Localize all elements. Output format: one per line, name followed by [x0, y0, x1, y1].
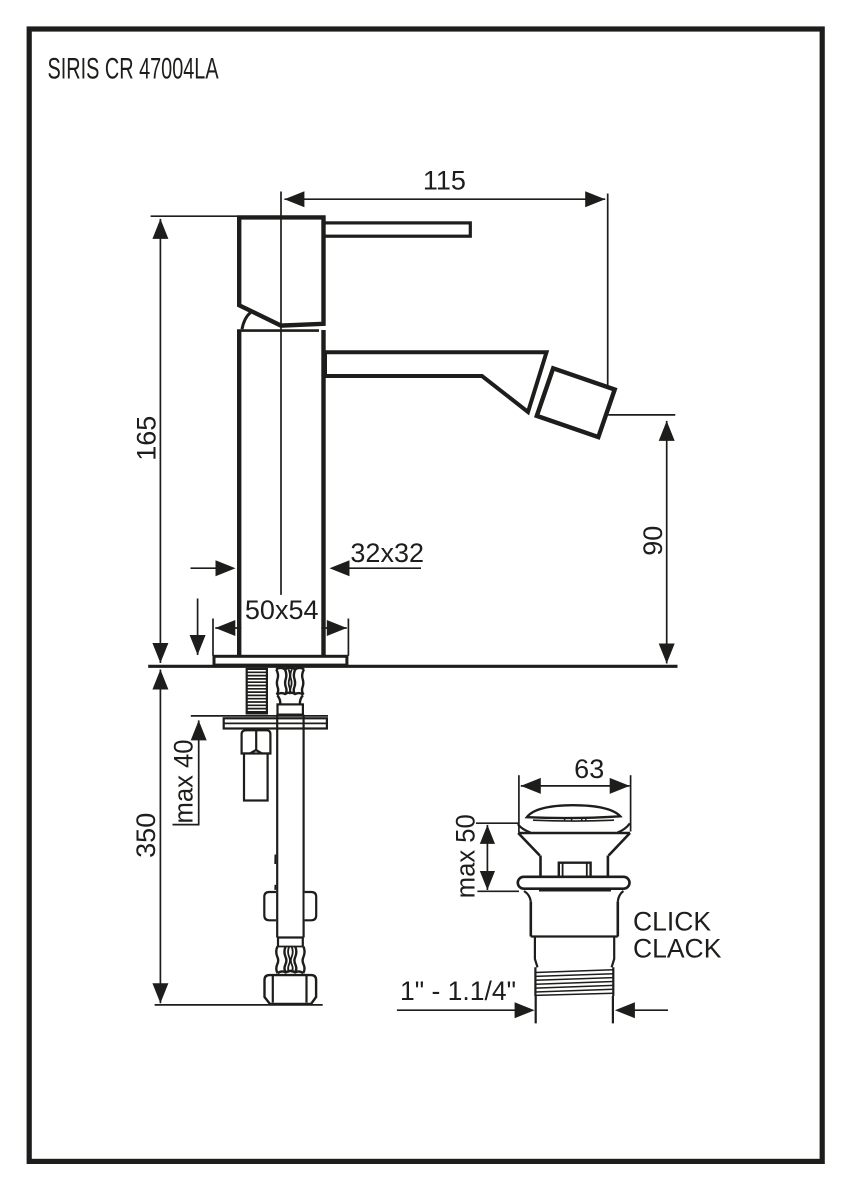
svg-text:165: 165 — [131, 416, 161, 461]
svg-text:CLICK: CLICK — [633, 907, 711, 937]
svg-text:1" - 1.1/4": 1" - 1.1/4" — [400, 976, 516, 1006]
svg-text:50x54: 50x54 — [245, 595, 319, 625]
svg-text:350: 350 — [131, 813, 161, 858]
svg-text:SIRIS CR 47004LA: SIRIS CR 47004LA — [48, 52, 219, 85]
svg-text:115: 115 — [423, 166, 466, 196]
svg-text:CLACK: CLACK — [633, 934, 722, 964]
svg-text:max 50: max 50 — [450, 814, 480, 898]
svg-text:90: 90 — [638, 526, 668, 556]
svg-text:32x32: 32x32 — [350, 538, 424, 568]
svg-text:max 40: max 40 — [169, 740, 199, 824]
svg-text:63: 63 — [574, 754, 604, 784]
